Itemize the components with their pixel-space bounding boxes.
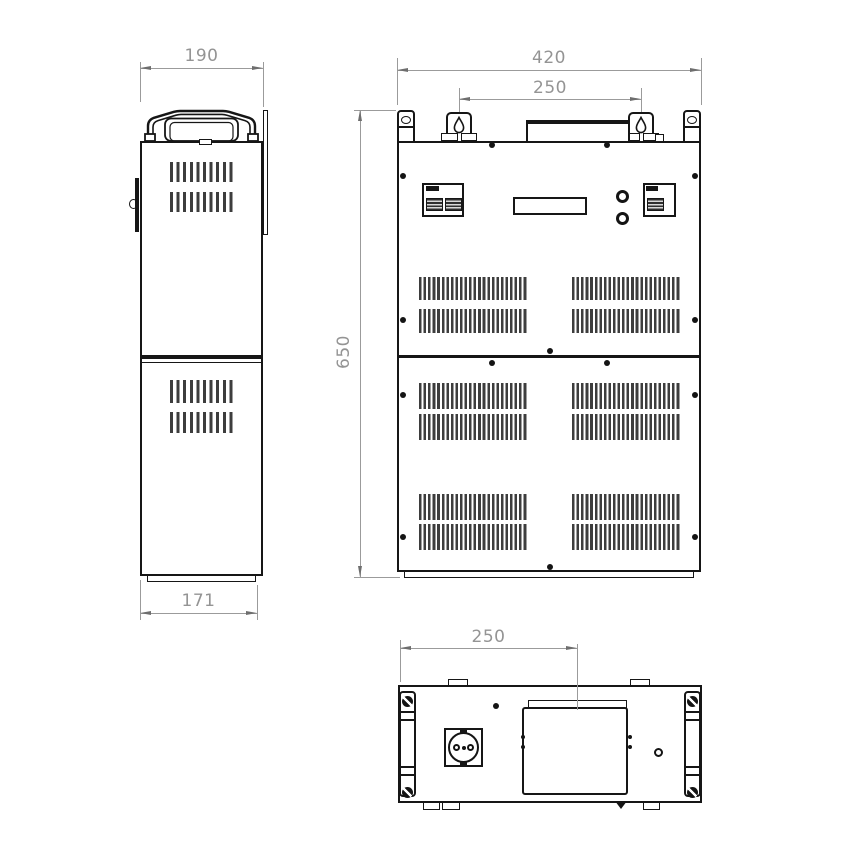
- dim-arrowhead: [358, 110, 362, 121]
- rail-screw: [402, 696, 413, 707]
- rail-screw: [687, 787, 698, 798]
- dim-arrowhead: [358, 566, 362, 577]
- vent-grille: [572, 277, 680, 300]
- vent-grille: [419, 383, 527, 409]
- vent-grille: [419, 494, 527, 520]
- vent-grille: [170, 380, 235, 403]
- vent-grille: [572, 383, 680, 409]
- screw: [489, 360, 495, 366]
- dim-arrowhead: [397, 68, 408, 72]
- keyhole-slot-icon: [452, 116, 466, 136]
- display-window: [513, 197, 587, 215]
- socket-clip: [460, 729, 467, 733]
- top-handle-plate: [526, 120, 630, 143]
- breaker-toggle: [445, 198, 462, 211]
- dim-arrowhead: [400, 646, 411, 650]
- side-section-divider-line: [141, 362, 262, 363]
- dim-arrowhead: [140, 66, 151, 70]
- rail-line: [400, 711, 415, 713]
- rear-mount-plate-edge: [263, 110, 268, 235]
- cover-clip-dot: [521, 745, 525, 749]
- screw: [604, 360, 610, 366]
- dim-line: [400, 648, 577, 649]
- bracket-hole: [401, 116, 411, 124]
- screw: [400, 392, 406, 398]
- dim-arrowhead: [690, 68, 701, 72]
- dim-arrowhead: [246, 611, 257, 615]
- screw: [547, 564, 553, 570]
- rail-line: [685, 774, 700, 776]
- vent-grille: [572, 524, 680, 550]
- dim-line: [459, 99, 641, 100]
- dim-label: 650: [335, 324, 353, 380]
- side-section-divider: [141, 355, 262, 359]
- rail-line: [400, 719, 415, 721]
- cover-clip-dot: [521, 735, 525, 739]
- cover-clip-dot: [628, 745, 632, 749]
- dim-line: [140, 613, 257, 614]
- bracket-hole: [687, 116, 697, 124]
- dim-ext-line: [577, 644, 578, 710]
- control-button-lower: [616, 212, 629, 225]
- technical-drawing: 190 171: [0, 0, 850, 850]
- screw: [400, 173, 406, 179]
- terminal-cover: [522, 707, 628, 795]
- socket-pin-hole: [453, 744, 460, 751]
- vent-grille: [419, 277, 527, 300]
- rail-line: [400, 766, 415, 768]
- front-section-divider: [398, 355, 700, 358]
- keyhole-slot-icon: [634, 116, 648, 136]
- breaker-toggle: [426, 198, 443, 211]
- breaker-toggle: [647, 198, 664, 211]
- screw: [493, 703, 499, 709]
- dim-line: [140, 68, 263, 69]
- dim-arrowhead: [566, 646, 577, 650]
- screw: [692, 392, 698, 398]
- top-notch: [655, 134, 664, 142]
- screw: [400, 317, 406, 323]
- dim-arrowhead: [459, 97, 470, 101]
- screw: [400, 534, 406, 540]
- rail-line: [685, 766, 700, 768]
- screw: [692, 317, 698, 323]
- dim-line: [360, 110, 361, 577]
- vent-grille: [419, 414, 527, 440]
- vent-grille: [572, 414, 680, 440]
- socket-pin-hole: [467, 744, 474, 751]
- dim-label: 420: [397, 49, 701, 67]
- cover-clip-dot: [628, 735, 632, 739]
- vent-grille: [419, 309, 527, 333]
- dim-line: [397, 70, 701, 71]
- screw: [489, 142, 495, 148]
- bottom-wedge-mark: [615, 801, 627, 809]
- rail-line: [685, 719, 700, 721]
- vent-grille: [170, 412, 235, 433]
- screw: [604, 142, 610, 148]
- rail-line: [685, 711, 700, 713]
- side-latch-plate: [135, 178, 139, 232]
- dim-arrowhead: [140, 611, 151, 615]
- socket-center-dot: [462, 746, 466, 750]
- breaker-brand-label: [646, 186, 658, 191]
- screw: [547, 348, 553, 354]
- side-top-notch: [199, 139, 212, 145]
- control-button-upper: [616, 190, 629, 203]
- vent-grille: [170, 162, 235, 182]
- vent-grille: [170, 192, 235, 212]
- vent-grille: [572, 494, 680, 520]
- bracket-fold-line: [397, 126, 415, 128]
- breaker-brand-label: [426, 186, 439, 191]
- dim-label: 250: [459, 79, 641, 97]
- rail-screw: [687, 696, 698, 707]
- rail-line: [400, 774, 415, 776]
- dim-label: 250: [400, 628, 577, 646]
- rail-screw: [402, 787, 413, 798]
- carry-handle: [144, 109, 259, 141]
- vent-grille: [572, 309, 680, 333]
- cable-hole: [654, 748, 663, 757]
- vent-grille: [419, 524, 527, 550]
- dim-arrowhead: [630, 97, 641, 101]
- screw: [692, 534, 698, 540]
- dim-label: 190: [140, 47, 263, 65]
- bracket-fold-line: [683, 126, 701, 128]
- socket-clip: [460, 762, 467, 766]
- dim-arrowhead: [252, 66, 263, 70]
- dim-label: 171: [140, 592, 257, 610]
- screw: [692, 173, 698, 179]
